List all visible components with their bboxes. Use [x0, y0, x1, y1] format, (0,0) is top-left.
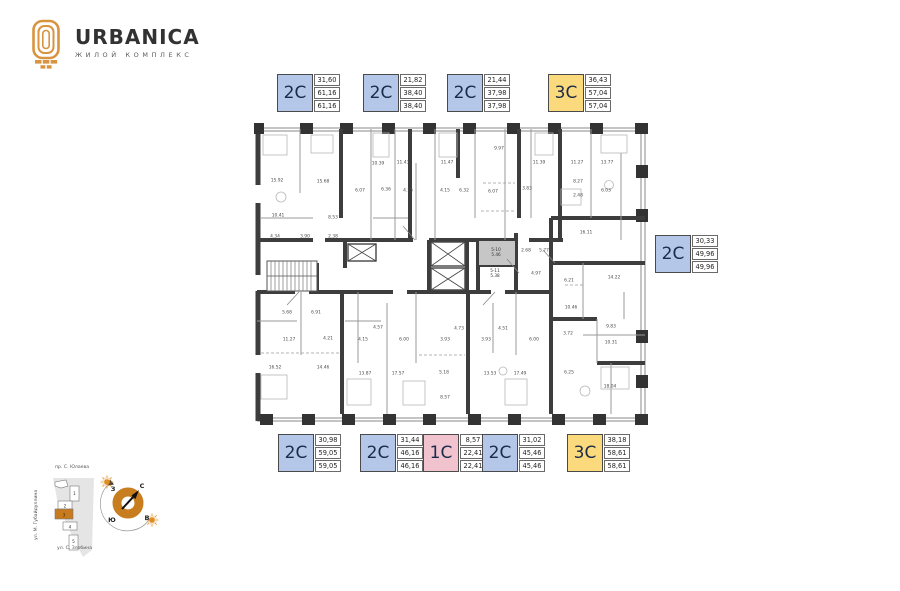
room-area-label: 14.46 [317, 366, 330, 371]
street-label-bottom: ул. С. Злобина [57, 546, 92, 551]
apartment-type-label: 3С [548, 74, 584, 112]
room-area-label: 16.52 [269, 366, 282, 371]
room-area-label: 4.73 [454, 327, 464, 332]
room-area-label: 17.57 [392, 372, 405, 377]
area-value: 38,40 [400, 100, 426, 112]
room-area-label: 4.21 [323, 337, 333, 342]
room-area-label: 6.07 [488, 190, 498, 195]
street-label-top: пр. С. Юлаева [55, 465, 89, 470]
area-value: 31,02 [519, 434, 545, 446]
room-area-label: 16.11 [580, 231, 593, 236]
area-value: 49,96 [692, 248, 718, 260]
room-area-label: 4.34 [270, 235, 280, 240]
area-value: 31,60 [314, 74, 340, 86]
room-area-label: 13.87 [359, 372, 372, 377]
urbanica-tower-icon [30, 18, 66, 72]
building-number-4: 4 [69, 525, 72, 530]
apartment-badge-top-1[interactable]: 2С31,6061,1661,16 [277, 74, 340, 112]
room-area-label: 5.68 [282, 311, 292, 316]
room-area-label: 10.46 [565, 306, 578, 311]
room-area-label: 15.92 [271, 179, 284, 184]
floor-plan: 15.9215.6810.3911.4311.479.9711.3911.271… [253, 123, 648, 425]
apartment-type-label: 2С [278, 434, 314, 472]
building-number-1: 1 [73, 491, 76, 496]
room-area-label: 3.93 [481, 338, 491, 343]
room-area-label: 4.15 [403, 189, 413, 194]
area-value: 61,16 [314, 87, 340, 99]
room-area-label: 6.91 [311, 311, 321, 316]
area-value: 61,16 [314, 100, 340, 112]
area-value: 59,05 [315, 447, 341, 459]
room-area-label: 11.43 [397, 161, 410, 166]
room-area-label: 6.00 [399, 338, 409, 343]
area-value: 58,61 [604, 447, 630, 459]
room-area-label: 11.27 [571, 161, 584, 166]
room-area-label: 18.04 [604, 385, 617, 390]
room-area-label: 2.38 [328, 235, 338, 240]
room-area-label: 3.72 [563, 332, 573, 337]
area-value: 30,33 [692, 235, 718, 247]
room-area-label: 15.68 [317, 180, 330, 185]
apartment-type-label: 3С [567, 434, 603, 472]
area-value: 30,98 [315, 434, 341, 446]
street-label-left: ул. М. Губайдуллина [34, 490, 39, 540]
room-area-label: 4.57 [373, 326, 383, 331]
room-area-label: 11.27 [283, 338, 296, 343]
room-area-label: 6.07 [355, 189, 365, 194]
area-value: 38,40 [400, 87, 426, 99]
room-area-label: 6.36 [381, 188, 391, 193]
building-number-2: 2 [64, 504, 67, 509]
room-area-label: 6.03 [601, 189, 611, 194]
apartment-badge-top-3[interactable]: 2С21,4437,9837,98 [447, 74, 510, 112]
area-value: 59,05 [315, 460, 341, 472]
apartment-badge-bottom-4[interactable]: 2С31,0245,4645,46 [482, 434, 545, 472]
area-value: 46,16 [397, 447, 423, 459]
room-area-label: 5.77 [539, 249, 549, 254]
apartment-type-label: 2С [447, 74, 483, 112]
area-values: 31,4446,1646,16 [397, 434, 423, 472]
apartment-badge-bottom-3[interactable]: 1С8,5722,4122,41 [423, 434, 486, 472]
room-area-label: 4.51 [498, 327, 508, 332]
apartment-type-label: 2С [655, 235, 691, 273]
area-value: 21,82 [400, 74, 426, 86]
room-area-label: 2.48 [573, 194, 583, 199]
room-area-label: 2.68 [521, 249, 531, 254]
area-values: 31,0245,4645,46 [519, 434, 545, 472]
area-value: 57,04 [585, 87, 611, 99]
logo-title: URBANICA [75, 26, 200, 48]
room-area-label: 17.49 [514, 372, 527, 377]
area-value: 31,44 [397, 434, 423, 446]
logo-subtitle: ЖИЛОЙ КОМПЛЕКС [75, 51, 200, 59]
area-values: 21,8238,4038,40 [400, 74, 426, 112]
room-area-label: 8.53 [328, 216, 338, 221]
room-area-label: 6.25 [564, 371, 574, 376]
room-area-label: 11.47 [441, 161, 454, 166]
area-value: 21,44 [484, 74, 510, 86]
area-value: 46,16 [397, 460, 423, 472]
room-area-label: 6.00 [529, 338, 539, 343]
room-area-label: 6.21 [564, 279, 574, 284]
area-values: 36,4357,0457,04 [585, 74, 611, 112]
room-area-label: 10.41 [272, 214, 285, 219]
apartment-badge-top-4[interactable]: 3С36,4357,0457,04 [548, 74, 611, 112]
apartment-badge-bottom-1[interactable]: 2С30,9859,0559,05 [278, 434, 341, 472]
room-area-label: 4.97 [531, 272, 541, 277]
area-value: 45,46 [519, 460, 545, 472]
compass-west-label: З [111, 485, 116, 493]
room-area-label: 10.39 [372, 162, 385, 167]
compass-north-label: С [140, 482, 145, 490]
room-area-label: 4.15 [358, 338, 368, 343]
apartment-badge-right-1[interactable]: 2С30,3349,9649,96 [655, 235, 718, 273]
floor-plan-drawing [253, 123, 648, 425]
area-value: 37,98 [484, 87, 510, 99]
area-value: 38,18 [604, 434, 630, 446]
building-number-5: 5 [72, 539, 75, 544]
building-number-3: 3 [63, 513, 66, 518]
area-values: 38,1858,6158,61 [604, 434, 630, 472]
logo: URBANICA ЖИЛОЙ КОМПЛЕКС [30, 18, 200, 72]
staircase [267, 261, 317, 291]
apartment-badge-bottom-2[interactable]: 2С31,4446,1646,16 [360, 434, 423, 472]
room-area-label: 13.77 [601, 161, 614, 166]
area-value: 58,61 [604, 460, 630, 472]
tech-room-label: 5-115.38 [490, 269, 500, 279]
apartment-type-label: 1С [423, 434, 459, 472]
room-area-label: 8.27 [573, 180, 583, 185]
room-area-label: 14.22 [608, 276, 621, 281]
compass-south-label: Ю [108, 516, 116, 524]
tech-room-label: 5-105.46 [491, 248, 501, 258]
room-area-label: 9.97 [494, 147, 504, 152]
compass-east-label: В [145, 514, 150, 522]
room-area-label: 3.83 [522, 187, 532, 192]
area-values: 30,3349,9649,96 [692, 235, 718, 273]
area-value: 37,98 [484, 100, 510, 112]
area-values: 31,6061,1661,16 [314, 74, 340, 112]
area-values: 30,9859,0559,05 [315, 434, 341, 472]
area-value: 45,46 [519, 447, 545, 459]
area-value: 49,96 [692, 261, 718, 273]
room-area-label: 10.31 [605, 341, 618, 346]
apartment-type-label: 2С [482, 434, 518, 472]
page: URBANICA ЖИЛОЙ КОМПЛЕКС 2С31,6061,1661,1… [0, 0, 900, 591]
apartment-type-label: 2С [277, 74, 313, 112]
room-area-label: 3.93 [440, 338, 450, 343]
area-value: 36,43 [585, 74, 611, 86]
room-area-label: 4.15 [440, 189, 450, 194]
apartment-badge-bottom-5[interactable]: 3С38,1858,6158,61 [567, 434, 630, 472]
room-area-label: 9.83 [606, 325, 616, 330]
mini-map: пр. С. Юлаева ул. М. Губайдуллина ул. С.… [25, 460, 195, 570]
apartment-badge-top-2[interactable]: 2С21,8238,4038,40 [363, 74, 426, 112]
elevator-shafts [348, 242, 465, 290]
apartment-type-label: 2С [363, 74, 399, 112]
room-area-label: 5.18 [439, 371, 449, 376]
room-area-label: 8.57 [440, 396, 450, 401]
room-area-label: 3.90 [300, 235, 310, 240]
room-area-label: 6.32 [459, 189, 469, 194]
area-values: 21,4437,9837,98 [484, 74, 510, 112]
room-area-label: 13.53 [484, 372, 497, 377]
apartment-type-label: 2С [360, 434, 396, 472]
area-value: 57,04 [585, 100, 611, 112]
site-plan-and-compass: 1 2 3 4 5 [25, 460, 195, 570]
room-area-label: 11.39 [533, 161, 546, 166]
